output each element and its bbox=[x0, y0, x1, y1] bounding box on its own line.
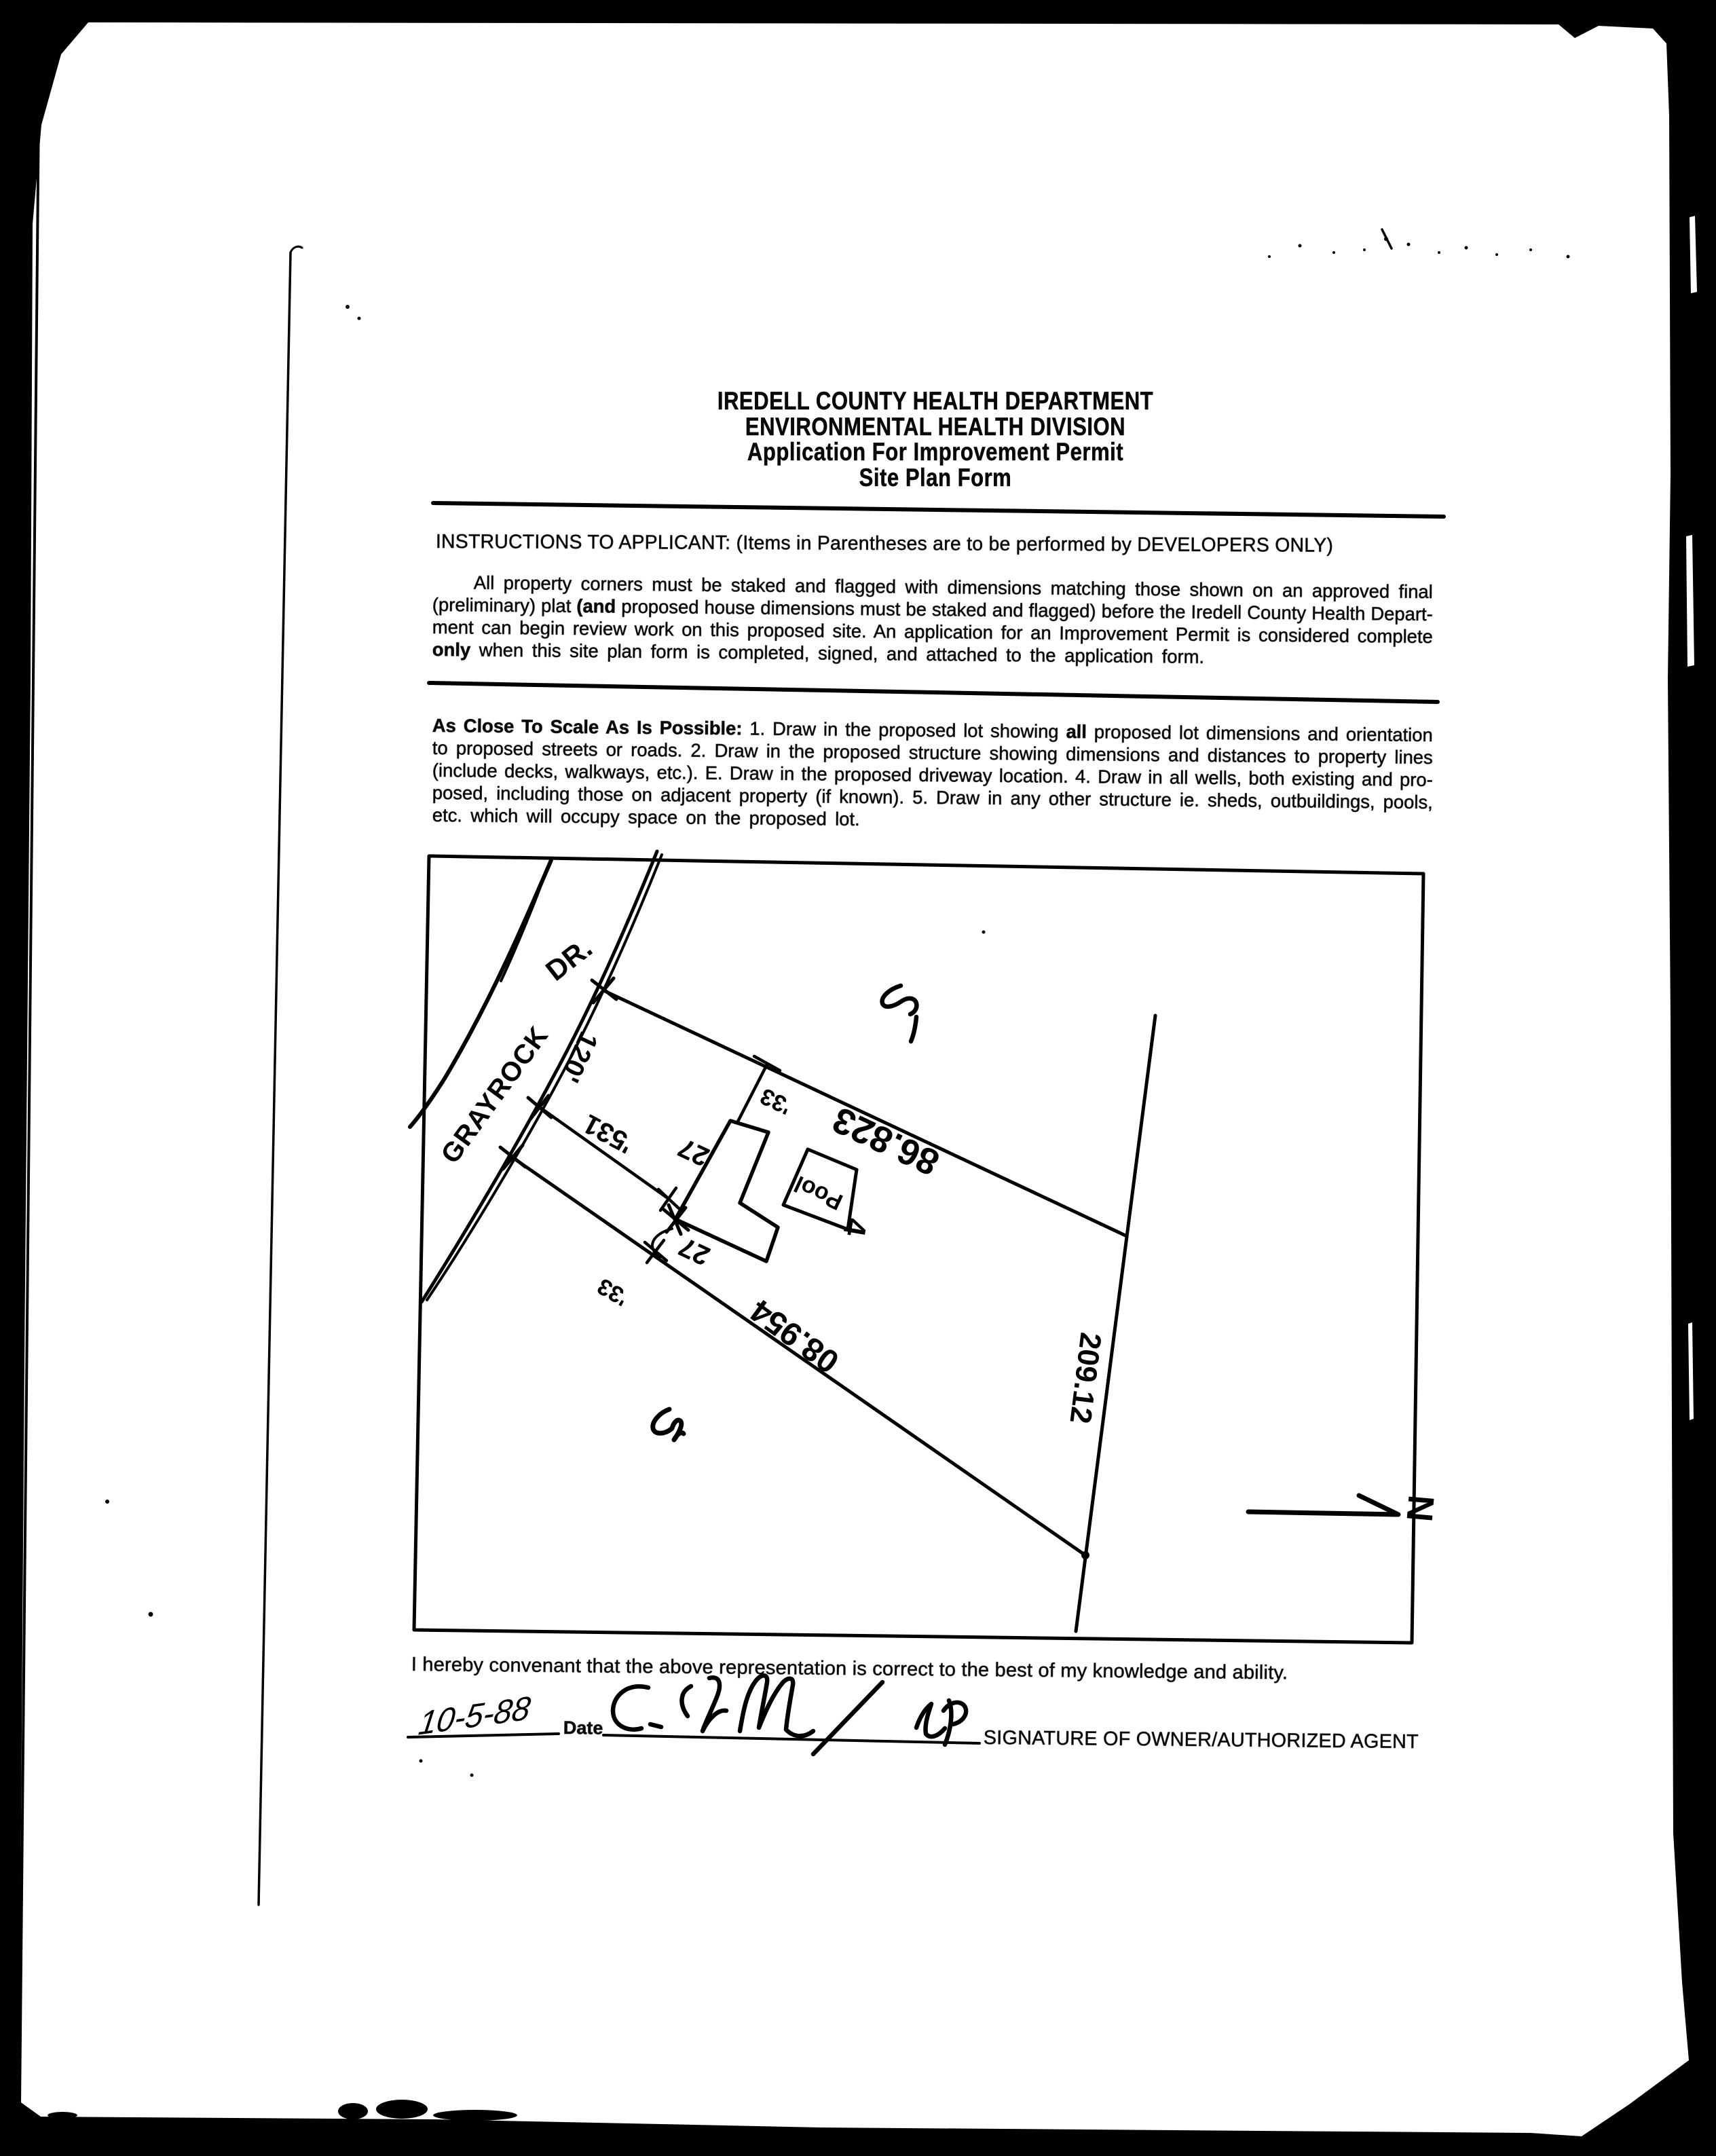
svg-text:4: 4 bbox=[836, 1216, 874, 1240]
svg-text:08.954: 08.954 bbox=[744, 1292, 846, 1379]
svg-text:GRAYROCK: GRAYROCK bbox=[435, 1021, 554, 1169]
svg-text:Pool: Pool bbox=[791, 1170, 847, 1215]
svg-text:27: 27 bbox=[675, 1231, 715, 1271]
svg-text:27: 27 bbox=[674, 1132, 714, 1172]
svg-text:'33: '33 bbox=[756, 1083, 796, 1119]
svg-text:209.12: 209.12 bbox=[1063, 1331, 1107, 1426]
svg-text:DR.: DR. bbox=[540, 931, 598, 987]
svg-text:N: N bbox=[1398, 1493, 1441, 1523]
svg-text:'531: '531 bbox=[578, 1109, 638, 1159]
svg-text:'33: '33 bbox=[593, 1273, 633, 1311]
svg-text:86.823: 86.823 bbox=[826, 1099, 945, 1183]
